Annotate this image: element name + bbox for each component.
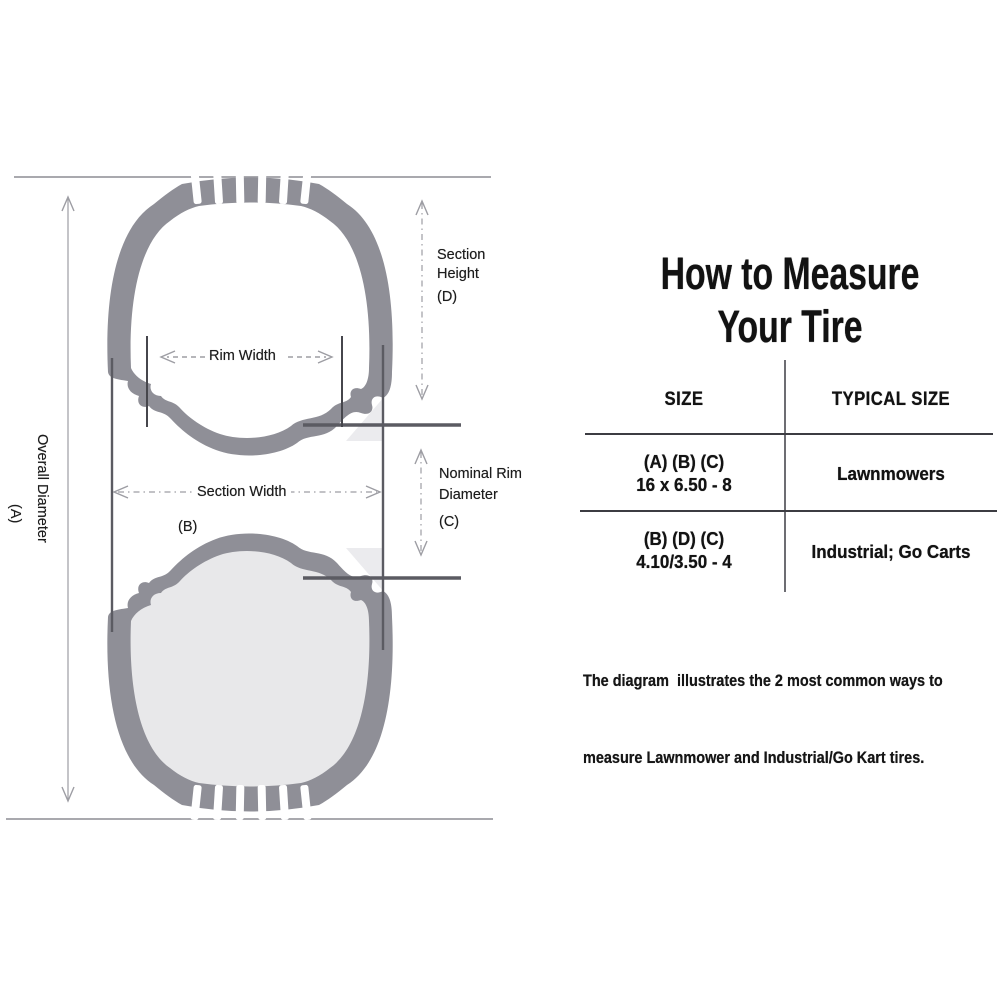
row2-size-value: 4.10/3.50 - 4 xyxy=(591,550,777,573)
table-row1-typical: Lawnmowers xyxy=(793,462,988,485)
section-height-line2: Height xyxy=(437,265,485,284)
page-title-line2: Your Tire xyxy=(620,300,961,353)
row1-size-keys: (A) (B) (C) xyxy=(591,450,777,473)
row2-size-keys: (B) (D) (C) xyxy=(591,527,777,550)
table-header-size: SIZE xyxy=(595,388,773,411)
tire-top-half xyxy=(107,169,392,456)
overall-diameter-key-label: (A) xyxy=(5,504,24,523)
page-title: How to Measure Your Tire xyxy=(620,247,961,353)
tire-measurement-page: Overall Diameter (A) Section Height (D) … xyxy=(0,0,1000,1000)
table-row2-size: (B) (D) (C) 4.10/3.50 - 4 xyxy=(591,527,777,573)
overall-diameter-label: Overall Diameter xyxy=(32,434,51,543)
section-height-key: (D) xyxy=(437,288,485,307)
size-table: SIZE TYPICAL SIZE (A) (B) (C) 16 x 6.50 … xyxy=(583,360,997,594)
table-row2-typical: Industrial; Go Carts xyxy=(793,540,988,563)
page-title-line1: How to Measure xyxy=(620,247,961,300)
table-rule-1 xyxy=(585,433,993,435)
table-column-divider xyxy=(784,360,786,592)
table-row1-size: (A) (B) (C) 16 x 6.50 - 8 xyxy=(591,450,777,496)
footnote: The diagram illustrates the 2 most commo… xyxy=(583,617,983,821)
section-height-arrow xyxy=(416,201,428,399)
nominal-rim-diameter-arrow xyxy=(415,450,427,555)
nominal-rim-key: (C) xyxy=(439,512,522,533)
table-header-typical-size: TYPICAL SIZE xyxy=(798,388,985,411)
section-width-key-label: (B) xyxy=(178,518,197,537)
section-width-label: Section Width xyxy=(192,483,291,502)
nominal-rim-diameter-label: Nominal Rim Diameter (C) xyxy=(439,464,522,533)
row1-size-value: 16 x 6.50 - 8 xyxy=(591,473,777,496)
section-height-line1: Section xyxy=(437,246,485,265)
nominal-rim-line1: Nominal Rim xyxy=(439,464,522,485)
footnote-line1: The diagram illustrates the 2 most commo… xyxy=(583,668,983,694)
rim-width-label: Rim Width xyxy=(209,347,276,366)
table-rule-2 xyxy=(580,510,997,512)
overall-diameter-arrow xyxy=(62,197,74,801)
section-height-label: Section Height (D) xyxy=(437,246,485,307)
footnote-line2: measure Lawnmower and Industrial/Go Kart… xyxy=(583,745,983,771)
nominal-rim-line2: Diameter xyxy=(439,485,522,506)
